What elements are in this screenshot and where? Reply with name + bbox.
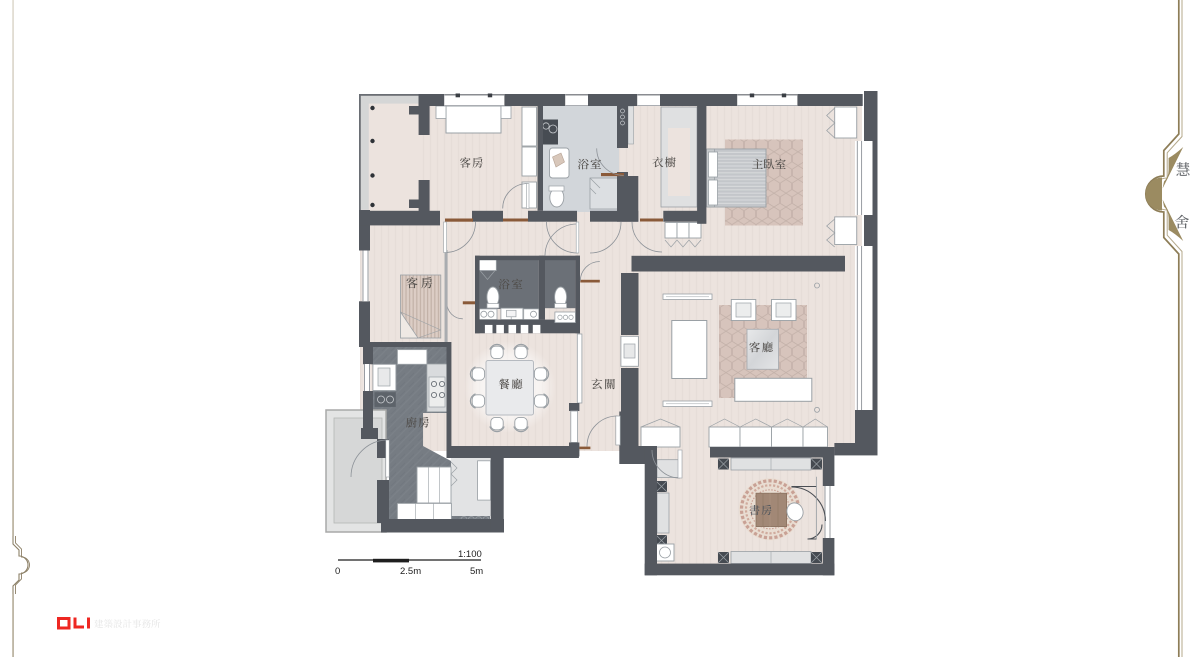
svg-text:2.5m: 2.5m	[400, 566, 421, 577]
svg-text:1:100: 1:100	[458, 549, 482, 560]
svg-text:5m: 5m	[470, 566, 483, 577]
svg-text:0: 0	[335, 566, 340, 577]
